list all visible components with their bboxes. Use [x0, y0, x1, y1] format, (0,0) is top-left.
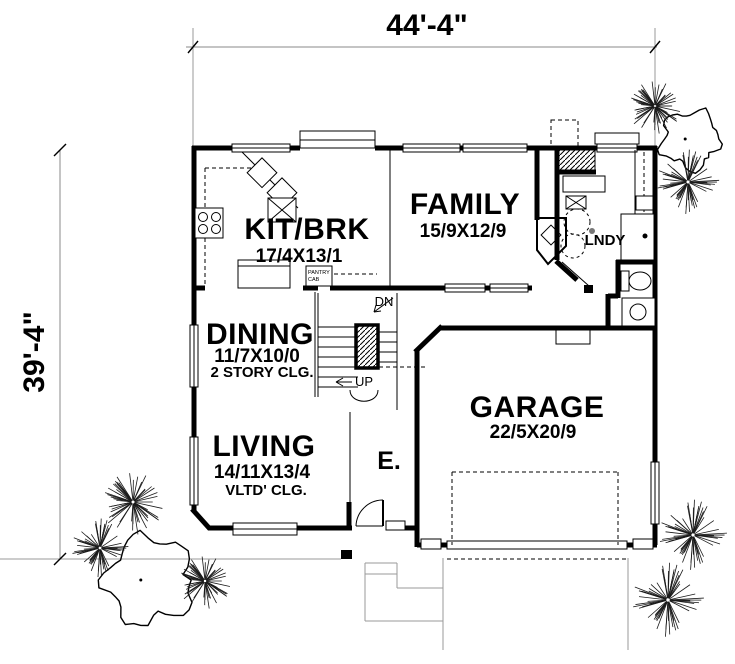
- dimension-height: 39'-4": [18, 144, 66, 565]
- tree-burst-icon: [633, 563, 704, 637]
- window: [490, 284, 528, 292]
- window: [403, 144, 460, 152]
- toilet-icon: [621, 271, 651, 291]
- garage-shelf: [556, 330, 590, 344]
- hall-door-leaf: [562, 262, 589, 286]
- height-dimension-label: 39'-4": [18, 311, 51, 392]
- tree-blob-icon: [98, 530, 192, 625]
- front-walk-steps: [365, 563, 443, 621]
- closet-shelf: [563, 176, 605, 192]
- room-label-living: LIVING: [212, 430, 315, 463]
- window: [651, 462, 659, 524]
- trees: [72, 82, 726, 637]
- window: [190, 437, 198, 505]
- room-size-garage: 22/5X20/9: [490, 422, 577, 443]
- tree-burst-icon: [72, 519, 128, 577]
- range-icon: [195, 208, 223, 238]
- bay-window-living: [233, 523, 297, 535]
- tree-burst-icon: [631, 82, 680, 134]
- front-door: [356, 500, 405, 530]
- tree-burst-icon: [660, 500, 727, 570]
- tree-burst-icon: [105, 473, 162, 534]
- porch-post: [341, 550, 352, 559]
- stair-annotation-down: DN: [374, 294, 393, 312]
- room-label-laundry: LNDY: [585, 232, 626, 249]
- width-dimension-label: 44'-4": [386, 9, 467, 42]
- room-size-living: 14/11X13/4: [214, 462, 311, 483]
- room-label-family: FAMILY: [410, 188, 520, 221]
- staircase: [318, 293, 397, 410]
- laundry-cabinets: [621, 150, 654, 260]
- window: [463, 144, 527, 152]
- window: [232, 144, 290, 152]
- pantry-label-1: PANTRY: [308, 270, 330, 276]
- bay-window-top: [300, 131, 375, 148]
- room-label-kitchen: KIT/BRK: [244, 213, 369, 246]
- svg-text:UP: UP: [355, 374, 373, 389]
- window: [445, 284, 485, 292]
- wall-post: [584, 285, 593, 293]
- dimension-width: 44'-4": [186, 9, 660, 53]
- garage-car-bay: [452, 472, 618, 545]
- pantry-label-2: CAB: [308, 277, 320, 283]
- room-label-entry: E.: [377, 447, 401, 475]
- room-note-living: VLTD' CLG.: [225, 482, 307, 499]
- pantry-cabinet: PANTRY CAB: [306, 266, 332, 286]
- closet-shelves: [559, 150, 595, 170]
- tree-burst-icon: [658, 150, 719, 214]
- svg-text:DN: DN: [375, 294, 394, 309]
- bath-sink-icon: [622, 298, 655, 326]
- floor-plan-drawing: 44'-4" 39'-4": [0, 0, 735, 664]
- laundry-tub-icon: [566, 196, 586, 209]
- window: [190, 325, 198, 387]
- window: [595, 133, 639, 152]
- chimney-dashed-box: [551, 120, 578, 147]
- room-note-dining: 2 STORY CLG.: [210, 364, 313, 381]
- stair-rail-wall: [356, 325, 378, 368]
- room-label-garage: GARAGE: [470, 391, 605, 424]
- room-size-kitchen: 17/4X13/1: [256, 246, 343, 267]
- room-size-family: 15/9X12/9: [420, 221, 507, 242]
